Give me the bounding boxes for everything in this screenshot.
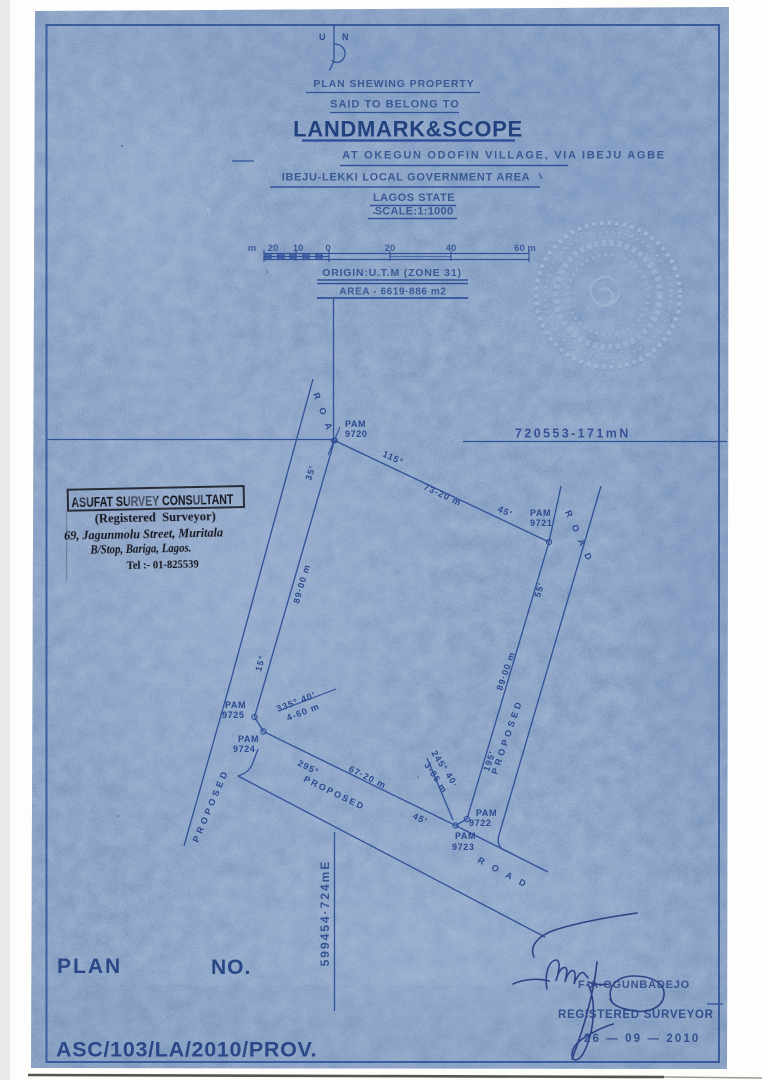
svg-text:LAGOS STATE: LAGOS STATE bbox=[373, 192, 455, 204]
svg-text:PLAN SHEWING PROPERTY: PLAN SHEWING PROPERTY bbox=[313, 78, 474, 90]
svg-text:PLAN: PLAN bbox=[57, 955, 122, 978]
svg-text:(Registered Surveyor): (Registered Surveyor) bbox=[95, 509, 216, 526]
svg-text:PAM: PAM bbox=[476, 808, 497, 818]
svg-text:20: 20 bbox=[385, 243, 396, 254]
svg-text:9720: 9720 bbox=[345, 429, 367, 439]
svg-text:NO.: NO. bbox=[211, 956, 251, 979]
svg-text:ASC/103/LA/2010/PROV.: ASC/103/LA/2010/PROV. bbox=[56, 1038, 317, 1062]
svg-text:SCALE:1:1000: SCALE:1:1000 bbox=[375, 206, 454, 218]
svg-text:PAM: PAM bbox=[238, 734, 259, 744]
svg-text:40: 40 bbox=[446, 243, 457, 254]
svg-text:AREA - 6619·886 m2: AREA - 6619·886 m2 bbox=[339, 287, 446, 298]
svg-text:0: 0 bbox=[325, 243, 330, 254]
svg-text:20: 20 bbox=[268, 243, 279, 254]
svg-text:26 — 09 — 2010: 26 — 09 — 2010 bbox=[584, 1033, 700, 1045]
svg-text:m: m bbox=[248, 243, 256, 254]
svg-text:SAID TO BELONG TO: SAID TO BELONG TO bbox=[330, 99, 460, 111]
svg-text:9721: 9721 bbox=[530, 518, 552, 528]
svg-text:60 m: 60 m bbox=[514, 243, 536, 254]
svg-text:AT OKEGUN ODOFIN VILLAGE, V: AT OKEGUN ODOFIN VILLAGE, VIA IBEJU AGBE bbox=[342, 150, 666, 162]
svg-text:U: U bbox=[319, 32, 326, 42]
svg-text:B/Stop, Bariga, Lagos.: B/Stop, Bariga, Lagos. bbox=[89, 541, 191, 557]
svg-text:ORIGIN:U.T.M (ZONE 31): ORIGIN:U.T.M (ZONE 31) bbox=[322, 267, 462, 279]
svg-text:IBEJU-LEKKI LOCAL GOVERNMENT: IBEJU-LEKKI LOCAL GOVERNMENT AREA bbox=[282, 172, 531, 184]
svg-text:PAM: PAM bbox=[530, 508, 551, 518]
svg-text:720553-171mN: 720553-171mN bbox=[515, 427, 631, 441]
svg-text:PAM: PAM bbox=[225, 700, 246, 710]
svg-text:10: 10 bbox=[293, 243, 304, 254]
svg-text:599454·724mE: 599454·724mE bbox=[318, 860, 332, 967]
svg-text:N: N bbox=[342, 32, 349, 42]
svg-text:Tel :- 01-825539: Tel :- 01-825539 bbox=[127, 556, 199, 572]
svg-text:9723: 9723 bbox=[452, 842, 474, 852]
svg-text:9724: 9724 bbox=[233, 744, 255, 754]
svg-text:LANDMARK&SCOPE: LANDMARK&SCOPE bbox=[293, 117, 523, 142]
svg-text:PAM: PAM bbox=[345, 419, 366, 429]
svg-text:PAM: PAM bbox=[455, 831, 476, 841]
svg-text:9725: 9725 bbox=[222, 710, 244, 720]
svg-text:9722: 9722 bbox=[469, 818, 491, 828]
